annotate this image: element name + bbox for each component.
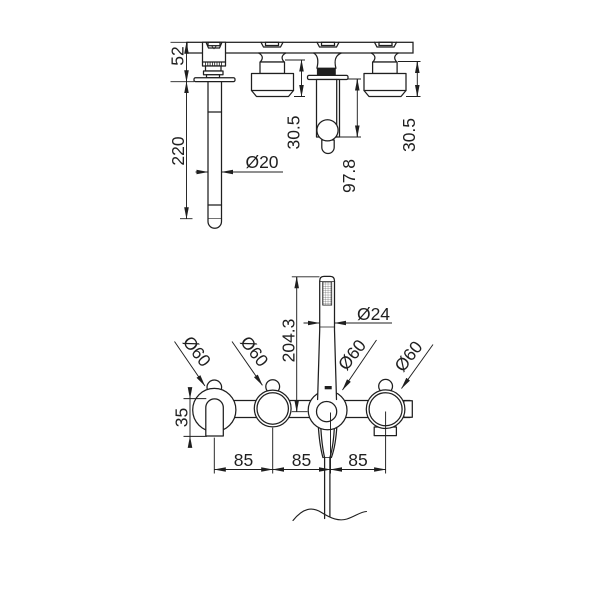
dim-204-3: 204.3 (279, 277, 320, 412)
shower-hose (325, 458, 330, 519)
dim-diameter60-label-1: Ø60 (179, 332, 215, 371)
dim-diameter20-label: Ø20 (245, 152, 278, 172)
logo-dash (325, 386, 332, 389)
holder-ring (317, 402, 337, 422)
dim-220-label: 220 (168, 136, 188, 165)
dim-97-8: 97.8 (339, 79, 361, 193)
rosette-2 (254, 390, 291, 427)
dim-204-3-label: 204.3 (279, 319, 299, 363)
spout-nose (206, 399, 224, 436)
spout-tip (208, 219, 222, 228)
dim-diameter60-label-2: Ø60 (236, 332, 272, 371)
dim-diameter60-label-4: Ø60 (390, 337, 426, 376)
technical-drawing: 52 220 Ø20 30.5 97.8 (0, 0, 600, 600)
dim-30-5-right-label: 30.5 (399, 118, 419, 152)
dim-85-label-3: 85 (348, 450, 367, 470)
dim-85-chain: 85 85 85 (214, 412, 385, 474)
front-view-drawing: 204.3 Ø24 Ø60 Ø60 Ø60 Ø60 35 (172, 276, 434, 520)
holder-side (308, 53, 349, 154)
top-view-drawing: 52 220 Ø20 30.5 97.8 (168, 42, 421, 228)
spout-side (194, 42, 235, 228)
spray-face (323, 282, 332, 305)
dim-diameter24: Ø24 (304, 304, 393, 324)
hose-ball (317, 120, 338, 141)
dim-35-label: 35 (172, 408, 192, 427)
dim-97-8-label: 97.8 (339, 159, 359, 193)
right-handle-side (364, 53, 406, 97)
dim-52-220: 52 220 (168, 42, 195, 218)
holder-nub (322, 140, 334, 154)
dim-85-label-1: 85 (234, 450, 253, 470)
dim-52-label: 52 (168, 46, 188, 65)
dim-85-label-2: 85 (292, 450, 311, 470)
dim-diameter24-label: Ø24 (357, 304, 390, 324)
dim-diameter60-label-3: Ø60 (334, 335, 370, 374)
dim-30-5-left-label: 30.5 (284, 115, 304, 149)
spout-tube (208, 82, 222, 219)
